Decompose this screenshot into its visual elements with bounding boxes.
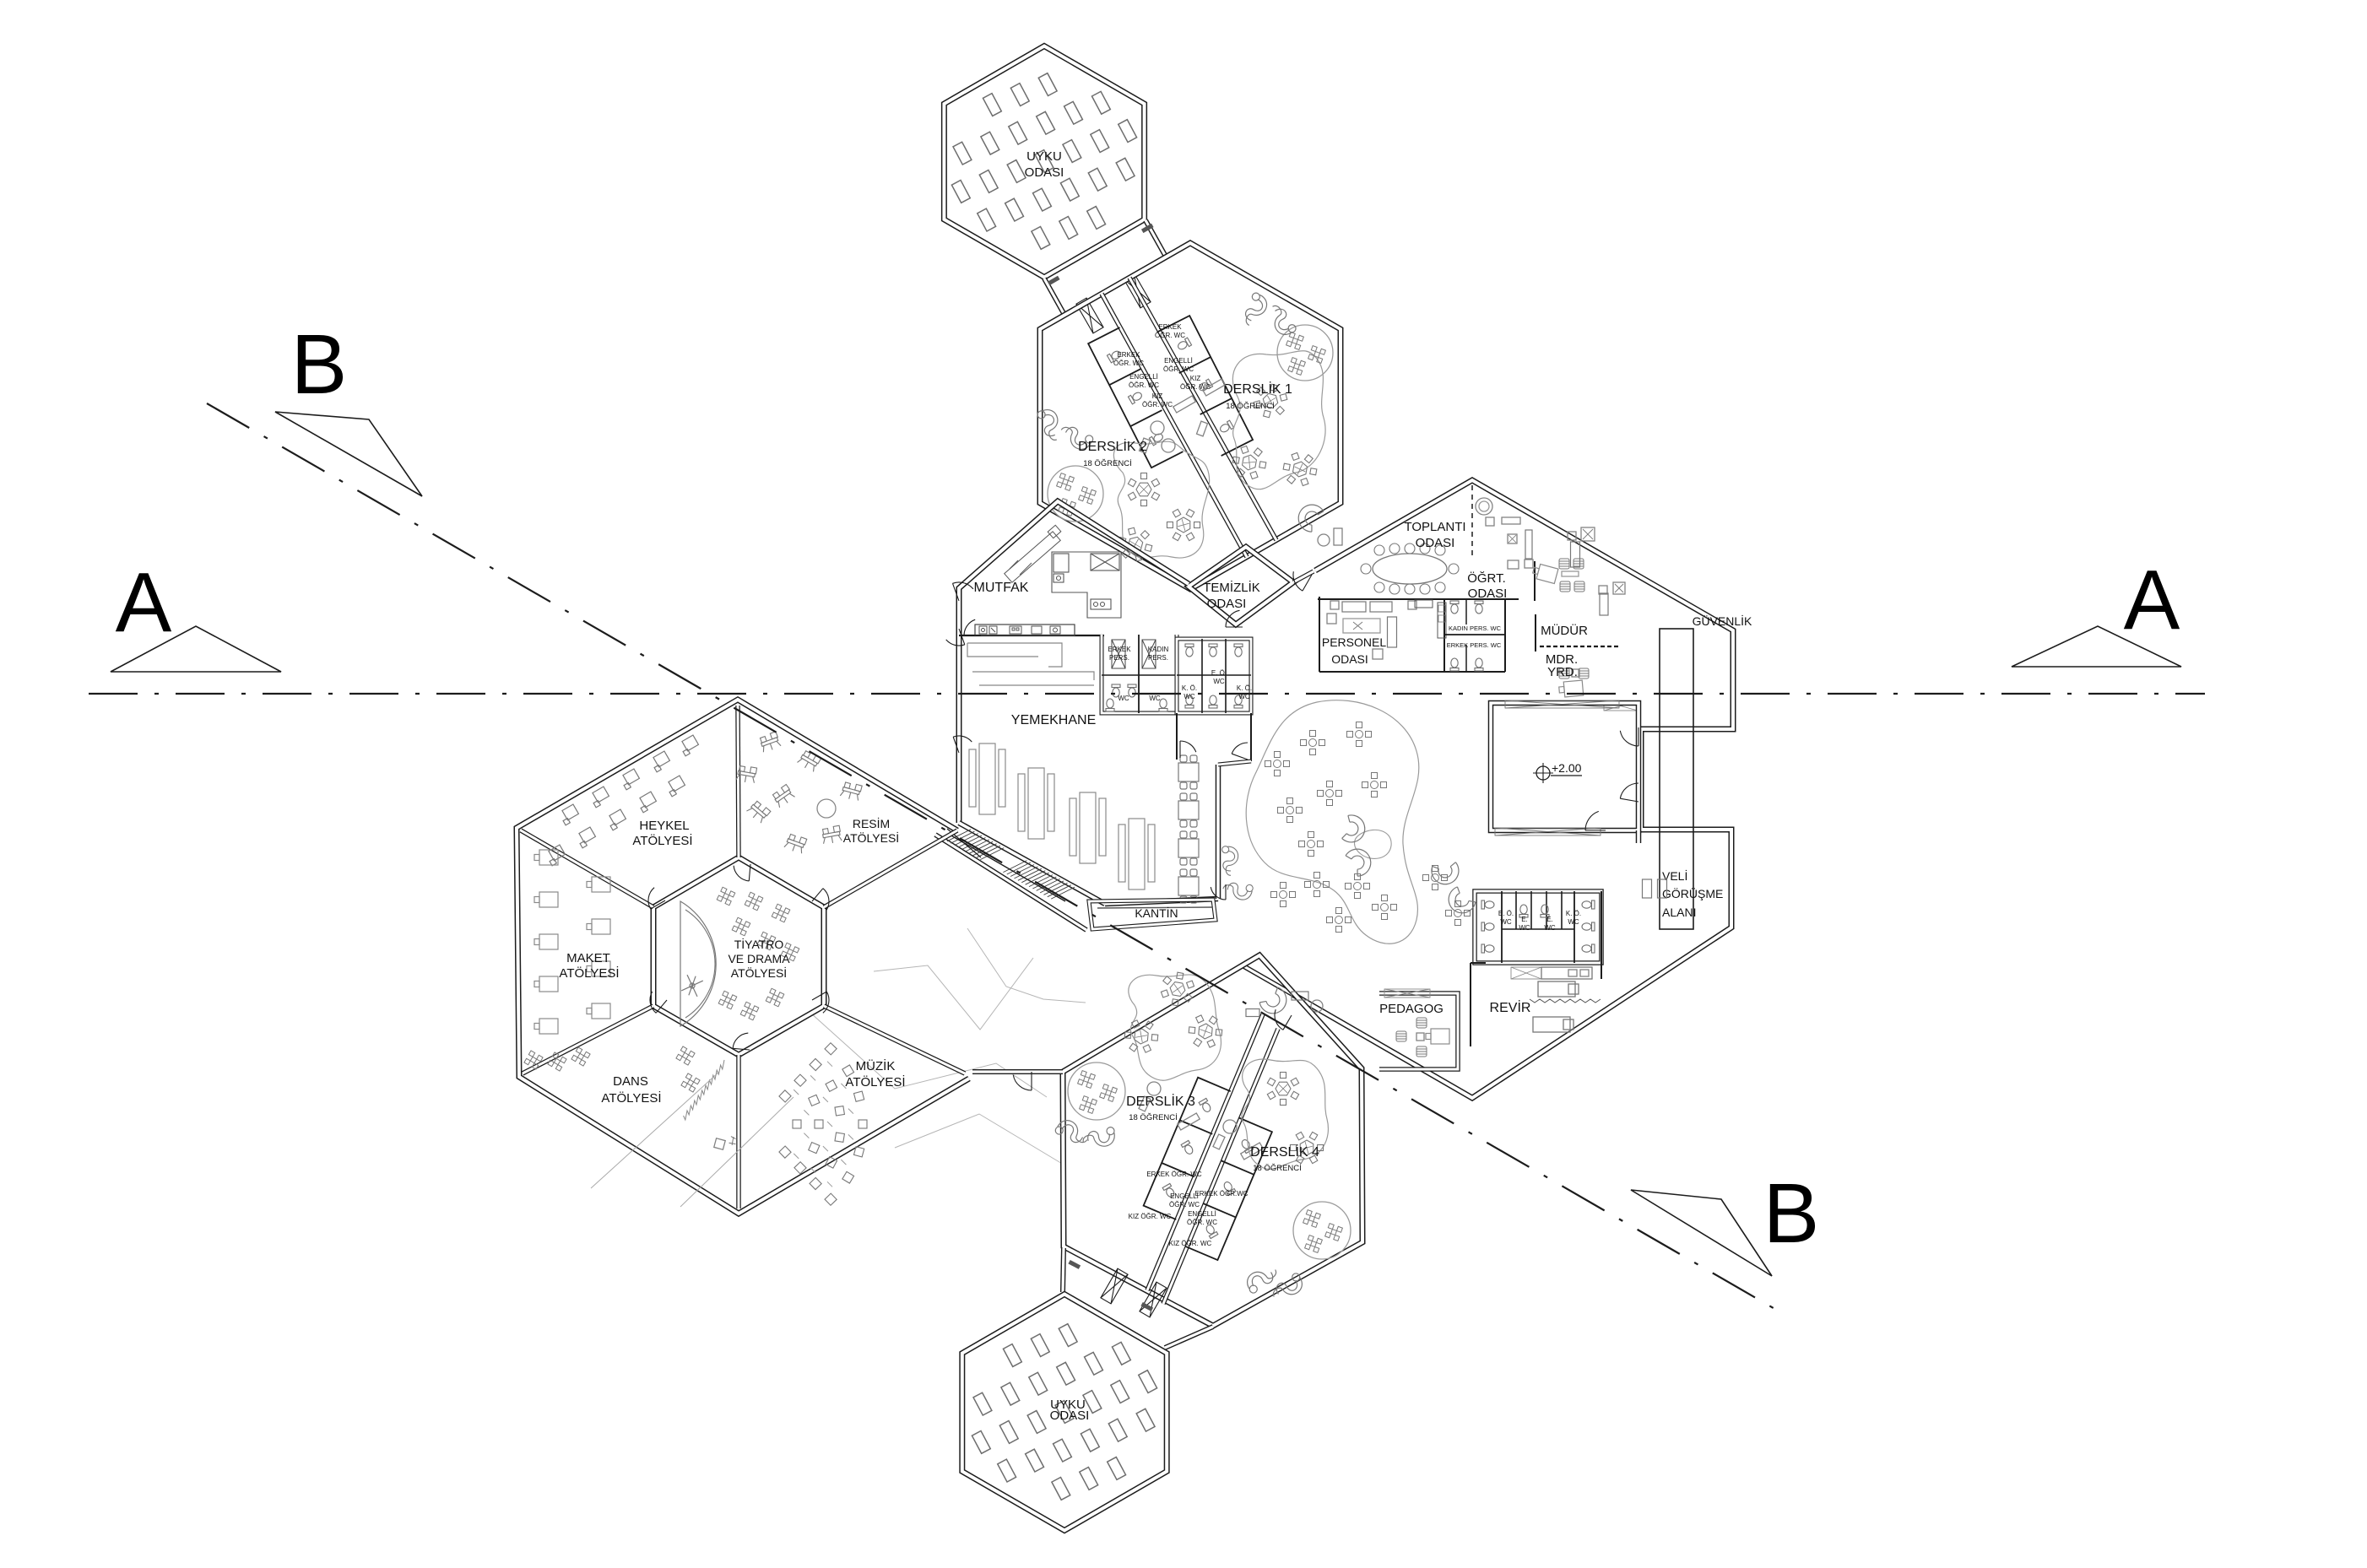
svg-text:ERKEK: ERKEK <box>1158 323 1182 331</box>
svg-text:TOPLANTI: TOPLANTI <box>1404 520 1465 534</box>
svg-text:WC: WC <box>1118 695 1129 702</box>
svg-text:TEMİZLİK: TEMİZLİK <box>1203 580 1260 595</box>
svg-text:ÖĞR. WC: ÖĞR. WC <box>1169 1201 1200 1208</box>
svg-text:E. Ö.: E. Ö. <box>1211 669 1227 677</box>
svg-text:ATÖLYESİ: ATÖLYESİ <box>845 1074 905 1089</box>
svg-text:GÜVENLİK: GÜVENLİK <box>1693 614 1752 628</box>
svg-text:ÖĞR. WC: ÖĞR. WC <box>1163 365 1194 373</box>
svg-text:WC: WC <box>1149 695 1161 702</box>
svg-text:E.: E. <box>1546 916 1553 923</box>
svg-text:B: B <box>291 317 348 412</box>
svg-text:ATÖLYESİ: ATÖLYESİ <box>731 965 787 980</box>
svg-text:K. Ö.: K. Ö. <box>1566 910 1581 917</box>
svg-text:ATÖLYESİ: ATÖLYESİ <box>559 965 619 981</box>
svg-text:VE DRAMA: VE DRAMA <box>728 952 790 965</box>
svg-text:KIZ: KIZ <box>1190 375 1201 382</box>
svg-text:ODASI: ODASI <box>1025 165 1064 180</box>
svg-text:ODASI: ODASI <box>1331 652 1368 666</box>
svg-text:WC: WC <box>1568 918 1579 926</box>
svg-text:KADIN: KADIN <box>1148 646 1169 653</box>
svg-text:HEYKEL: HEYKEL <box>639 819 689 833</box>
svg-text:ODASI: ODASI <box>1207 597 1247 611</box>
svg-text:E. Ö.: E. Ö. <box>1498 910 1514 917</box>
svg-text:ATÖLYESİ: ATÖLYESİ <box>632 833 692 848</box>
svg-text:MÜZİK: MÜZİK <box>856 1058 896 1073</box>
svg-text:18 ÖĞRENCİ: 18 ÖĞRENCİ <box>1129 1113 1178 1122</box>
svg-text:WC: WC <box>1213 678 1225 685</box>
svg-text:DERSLİK 1: DERSLİK 1 <box>1223 381 1292 397</box>
svg-text:YRD.: YRD. <box>1547 665 1578 679</box>
svg-text:B: B <box>1763 1166 1820 1261</box>
svg-text:18 ÖĞRENCİ: 18 ÖĞRENCİ <box>1253 1164 1302 1173</box>
svg-text:ENGELLİ: ENGELLİ <box>1188 1210 1216 1218</box>
svg-text:A: A <box>116 555 172 650</box>
svg-text:+2.00: +2.00 <box>1552 761 1582 775</box>
svg-text:ÖĞRT.: ÖĞRT. <box>1467 570 1506 586</box>
svg-text:KADIN PERS. WC: KADIN PERS. WC <box>1449 624 1502 632</box>
svg-text:VELİ: VELİ <box>1662 868 1687 883</box>
svg-text:WC: WC <box>1544 924 1556 932</box>
svg-text:ODASI: ODASI <box>1050 1408 1090 1423</box>
svg-text:WC: WC <box>1519 924 1530 932</box>
svg-text:DANS: DANS <box>613 1074 648 1089</box>
svg-text:A: A <box>2124 553 2180 647</box>
svg-text:UYKU: UYKU <box>1026 149 1062 164</box>
svg-text:GÖRÜŞME: GÖRÜŞME <box>1662 886 1723 900</box>
svg-text:ENGELLİ: ENGELLİ <box>1129 373 1158 381</box>
svg-text:WC: WC <box>1500 918 1512 926</box>
svg-text:ÖĞR. WC: ÖĞR. WC <box>1113 360 1144 367</box>
svg-text:ÖĞR. WC: ÖĞR. WC <box>1129 381 1159 389</box>
svg-text:ODASI: ODASI <box>1416 536 1455 550</box>
svg-text:ÖĞR. WC: ÖĞR. WC <box>1142 401 1173 408</box>
svg-text:ENGELLİ: ENGELLİ <box>1164 357 1193 365</box>
svg-text:ÖĞR. WC: ÖĞR. WC <box>1155 332 1185 339</box>
svg-text:E.: E. <box>1521 916 1528 923</box>
svg-text:ERKEK ÖĞR. WC: ERKEK ÖĞR. WC <box>1146 1171 1202 1178</box>
svg-text:PEDAGOG: PEDAGOG <box>1379 1002 1443 1016</box>
svg-text:RESİM: RESİM <box>853 816 890 830</box>
svg-text:ODASI: ODASI <box>1468 587 1508 601</box>
svg-text:MÜDÜR: MÜDÜR <box>1541 623 1588 638</box>
svg-text:PERSONEL: PERSONEL <box>1322 635 1386 649</box>
svg-text:ATÖLYESİ: ATÖLYESİ <box>601 1090 661 1106</box>
svg-text:18 ÖĞRENCİ: 18 ÖĞRENCİ <box>1226 402 1275 411</box>
svg-text:KIZ: KIZ <box>1152 392 1163 400</box>
svg-text:ERKEK: ERKEK <box>1117 351 1140 359</box>
svg-text:K. Ö.: K. Ö. <box>1182 684 1197 692</box>
svg-text:KIZ ÖĞR. WC: KIZ ÖĞR. WC <box>1129 1213 1172 1220</box>
svg-text:ÖĞR. WC: ÖĞR. WC <box>1187 1219 1217 1226</box>
svg-text:DERSLİK 3: DERSLİK 3 <box>1126 1093 1195 1109</box>
svg-text:DERSLİK 2: DERSLİK 2 <box>1078 438 1147 454</box>
svg-text:REVİR: REVİR <box>1490 999 1531 1015</box>
svg-text:KIZ ÖĞR. WC: KIZ ÖĞR. WC <box>1169 1240 1212 1247</box>
svg-text:DERSLİK 4: DERSLİK 4 <box>1250 1144 1319 1160</box>
svg-text:WC: WC <box>1183 693 1195 700</box>
svg-text:MUTFAK: MUTFAK <box>974 581 1029 595</box>
svg-text:ATÖLYESİ: ATÖLYESİ <box>843 830 899 845</box>
svg-text:ERKEK: ERKEK <box>1108 646 1131 653</box>
svg-text:KANTİN: KANTİN <box>1135 906 1178 920</box>
svg-text:ERKEK PERS. WC: ERKEK PERS. WC <box>1447 641 1502 649</box>
svg-text:ALANI: ALANI <box>1662 906 1696 919</box>
svg-text:PERS.: PERS. <box>1148 654 1168 662</box>
svg-text:ERKEK ÖĞR.WC: ERKEK ÖĞR.WC <box>1194 1190 1248 1198</box>
svg-text:ÖĞR. WC: ÖĞR. WC <box>1180 383 1211 391</box>
svg-text:MAKET: MAKET <box>566 951 610 965</box>
svg-text:K. Ö.: K. Ö. <box>1237 684 1252 692</box>
svg-text:YEMEKHANE: YEMEKHANE <box>1011 713 1096 727</box>
svg-text:18 ÖĞRENCİ: 18 ÖĞRENCİ <box>1083 459 1132 468</box>
svg-text:PERS.: PERS. <box>1109 654 1129 662</box>
svg-text:TİYATRO: TİYATRO <box>734 937 784 951</box>
